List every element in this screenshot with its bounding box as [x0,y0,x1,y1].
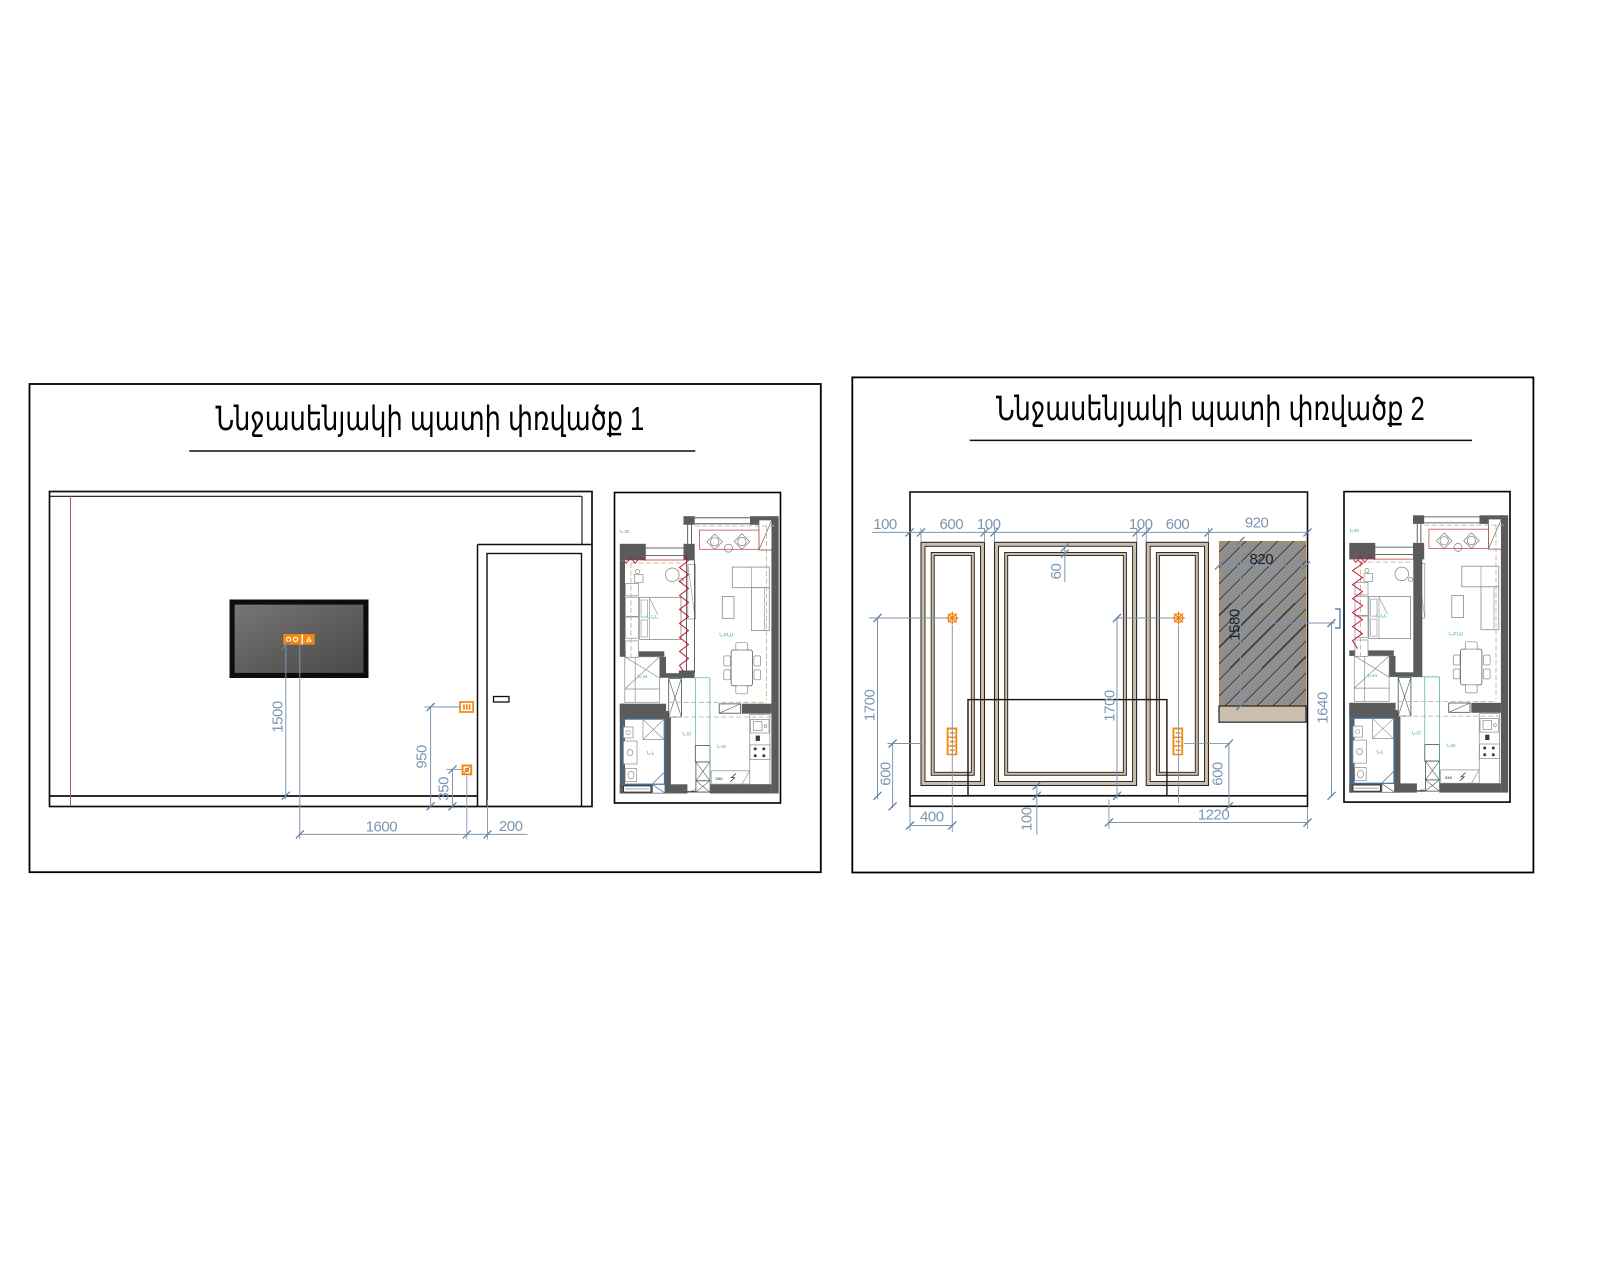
svg-text:60: 60 [1048,564,1065,580]
svg-text:950: 950 [414,745,431,769]
svg-text:920: 920 [1245,515,1269,532]
svg-text:1600: 1600 [366,819,398,836]
svg-text:350: 350 [436,777,453,801]
svg-text:1220: 1220 [1198,807,1230,824]
svg-text:1580: 1580 [1226,609,1243,641]
svg-text:1500: 1500 [270,701,287,733]
svg-text:600: 600 [940,516,964,533]
svg-text:820: 820 [1250,551,1274,568]
svg-text:1640: 1640 [1315,692,1332,724]
svg-text:1700: 1700 [1102,690,1119,722]
svg-text:100: 100 [1129,516,1153,533]
svg-text:400: 400 [920,809,944,826]
svg-text:600: 600 [1166,516,1190,533]
svg-text:100: 100 [977,516,1001,533]
svg-text:200: 200 [499,818,523,835]
svg-text:1700: 1700 [862,690,879,722]
svg-text:100: 100 [873,516,897,533]
svg-text:Ննջասենյակի պատի փռվածք 2: Ննջասենյակի պատի փռվածք 2 [996,391,1425,428]
svg-text:100: 100 [1019,807,1036,831]
svg-text:600: 600 [877,762,894,786]
svg-text:600: 600 [1209,762,1226,786]
svg-text:Ննջասենյակի պատի փռվածք 1: Ննջասենյակի պատի փռվածք 1 [216,401,645,438]
